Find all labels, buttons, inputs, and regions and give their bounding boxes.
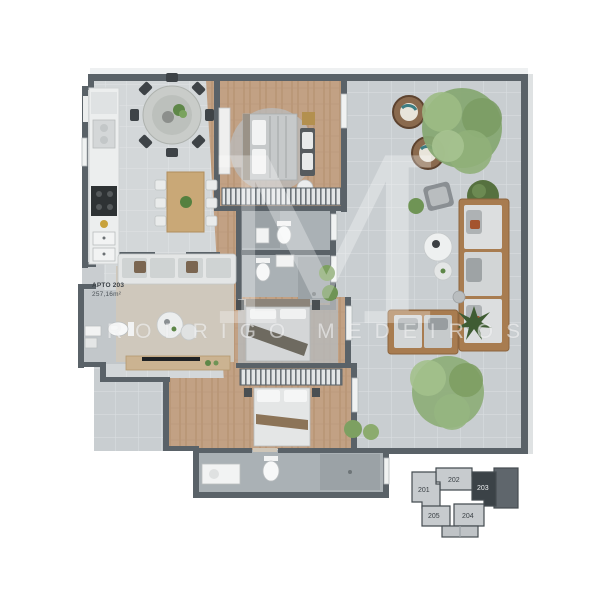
nightstand-icon xyxy=(312,388,320,397)
kitchen-knob xyxy=(100,220,108,228)
keyplan-label-205: 205 xyxy=(428,513,440,520)
keyplan-building-mass xyxy=(494,468,518,508)
nightstand-icon xyxy=(236,300,244,310)
terrace-bush-icon xyxy=(344,420,362,438)
toilet-icon xyxy=(263,456,279,481)
nightstand-icon xyxy=(244,388,252,397)
terrace-sofa-small-icon xyxy=(388,310,458,354)
bed-3-icon xyxy=(254,388,310,446)
table-plant-icon xyxy=(180,196,192,208)
wardrobe-1 xyxy=(222,188,341,205)
sink-icon xyxy=(276,255,294,267)
terrace-plant-icon xyxy=(322,285,338,301)
bed-1-icon xyxy=(243,114,297,180)
toilet-icon xyxy=(256,258,270,281)
keyplan-label-201: 201 xyxy=(418,487,430,494)
living-room xyxy=(116,254,236,370)
apartment-area-label: APTO 203 257,16m² xyxy=(92,282,146,300)
dining-table xyxy=(155,172,217,232)
apartment-area: 257,16m² xyxy=(92,291,146,300)
keyplan-label-202: 202 xyxy=(448,477,460,484)
bedroom1-desk xyxy=(219,108,230,174)
kitchen-cabinet xyxy=(91,92,117,114)
living-sofa-icon xyxy=(118,254,236,284)
vanity-icon xyxy=(202,464,240,484)
terrace-plant-icon xyxy=(408,198,424,214)
tv-console-icon xyxy=(126,356,230,370)
toilet-icon xyxy=(277,221,291,244)
bed-2-icon xyxy=(246,299,310,361)
keyplan: 201 202 203 204 205 xyxy=(406,462,522,540)
nightstand-icon xyxy=(312,300,320,310)
cooktop-icon xyxy=(91,186,117,216)
toilet-icon xyxy=(108,322,134,336)
barrel-chair-icon xyxy=(393,96,425,128)
keyplan-label-204: 204 xyxy=(462,513,474,520)
terrace-bush-icon xyxy=(363,424,379,440)
round-dining-table xyxy=(130,73,214,157)
terrace-plant-icon xyxy=(319,265,335,281)
apartment-number: APTO 203 xyxy=(92,282,146,291)
bedroom1-bench xyxy=(300,128,315,176)
nightstand-icon xyxy=(302,112,315,125)
side-stool-icon xyxy=(453,291,465,303)
floor-plan-render: M RODRIGO MEDEIROS APTO 203 257,16m² 201… xyxy=(0,0,600,600)
kitchen-sink-icon xyxy=(93,120,115,148)
terrace-sofa-long-icon xyxy=(459,199,509,351)
keyplan-label-203: 203 xyxy=(477,485,489,492)
kitchen-counter xyxy=(89,88,119,264)
sink-icon xyxy=(85,326,101,336)
bedroom2 xyxy=(236,299,338,363)
wardrobe-3 xyxy=(240,369,342,385)
sink-icon xyxy=(256,228,269,243)
